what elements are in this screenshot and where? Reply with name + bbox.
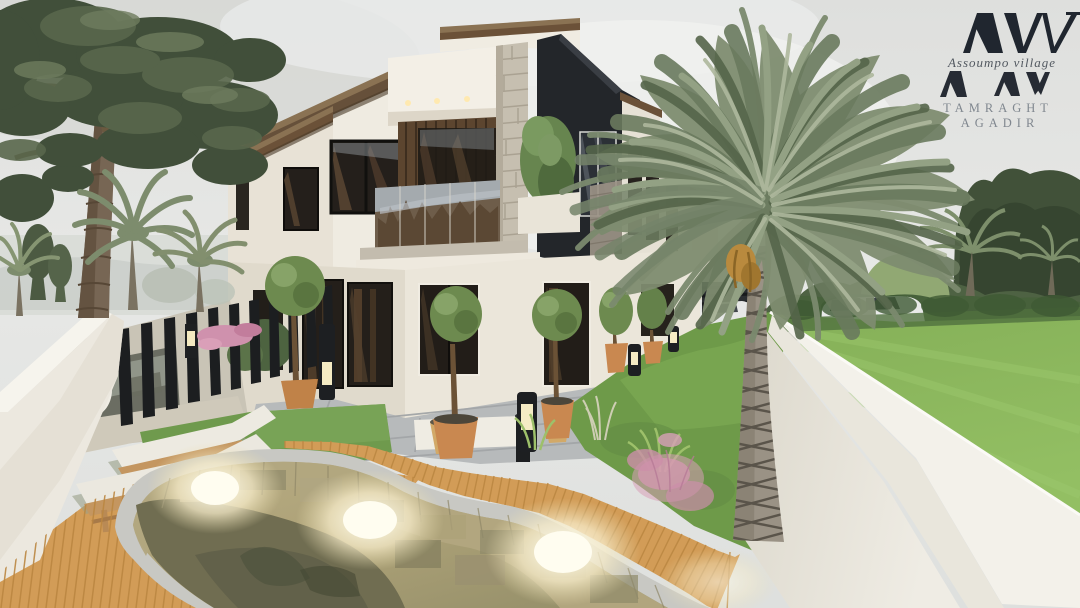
svg-text:AGADIR: AGADIR: [961, 116, 1040, 130]
svg-text:Assoumpo village: Assoumpo village: [947, 55, 1056, 70]
svg-text:TAMRAGHT: TAMRAGHT: [943, 101, 1053, 115]
